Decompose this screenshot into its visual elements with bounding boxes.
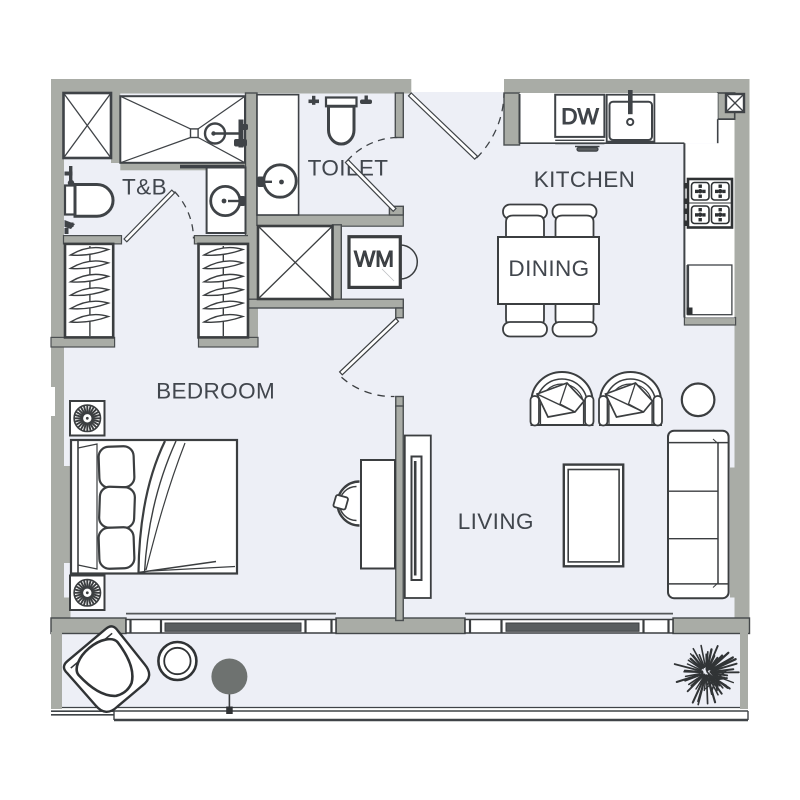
- svg-text:LIVING: LIVING: [458, 509, 534, 534]
- svg-text:BEDROOM: BEDROOM: [156, 379, 275, 404]
- svg-text:KITCHEN: KITCHEN: [534, 167, 636, 192]
- svg-text:DINING: DINING: [508, 256, 589, 281]
- svg-text:WM: WM: [354, 246, 394, 271]
- svg-text:DW: DW: [561, 104, 599, 129]
- svg-text:T&B: T&B: [122, 174, 167, 199]
